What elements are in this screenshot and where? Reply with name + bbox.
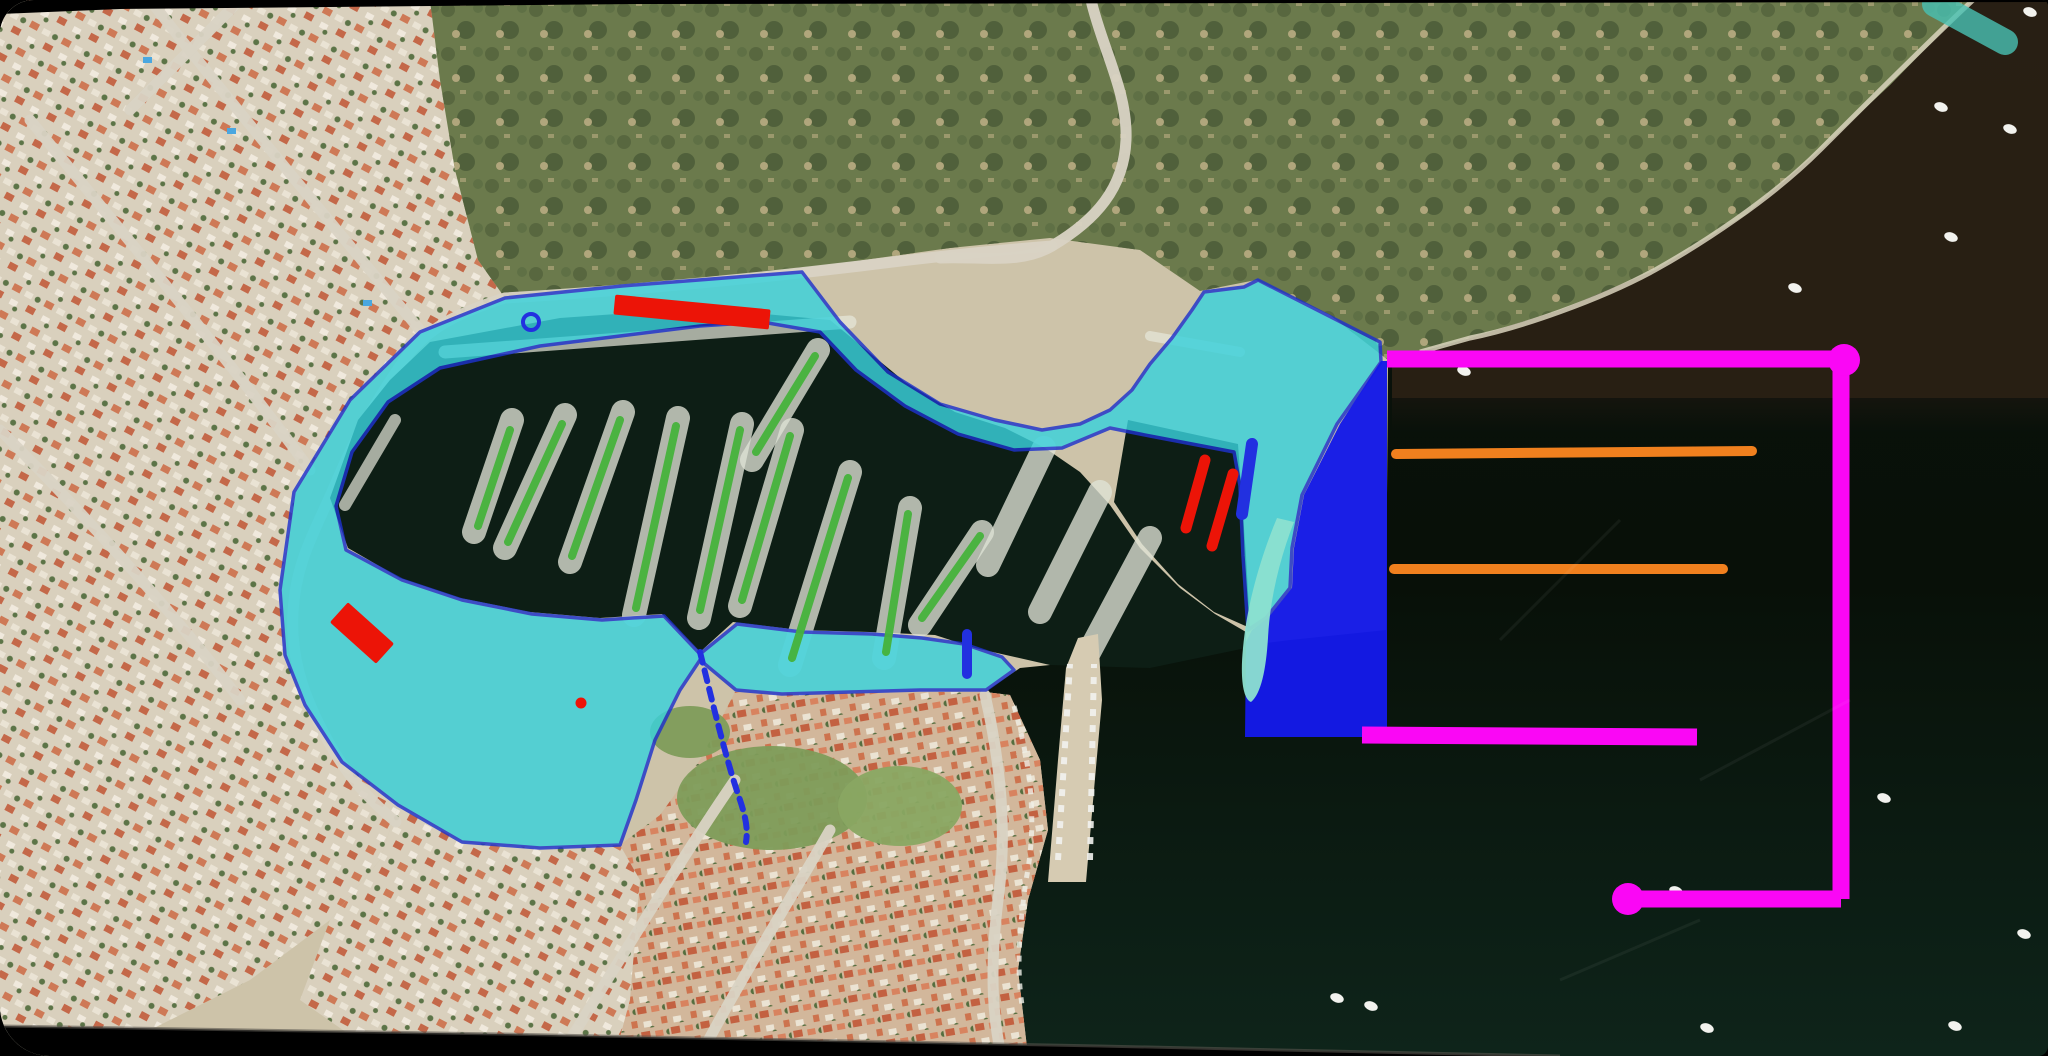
swimming-pool — [143, 57, 152, 63]
magenta-boundary-line — [1362, 735, 1697, 737]
park-lawn — [677, 746, 867, 850]
magenta-endpoint-dot — [1612, 883, 1644, 915]
photo-background — [0, 0, 2048, 1056]
park-lawn — [838, 766, 962, 846]
orange-measure-line-1 — [1396, 451, 1752, 454]
swimming-pool — [363, 300, 372, 306]
swimming-pool — [227, 128, 236, 134]
screen-content — [0, 0, 2048, 1056]
water-depth-transition — [1392, 398, 2048, 432]
magenta-endpoint-dot — [1828, 344, 1860, 376]
satellite-map-photo — [0, 0, 2048, 1056]
red-dot-marker — [576, 698, 587, 709]
